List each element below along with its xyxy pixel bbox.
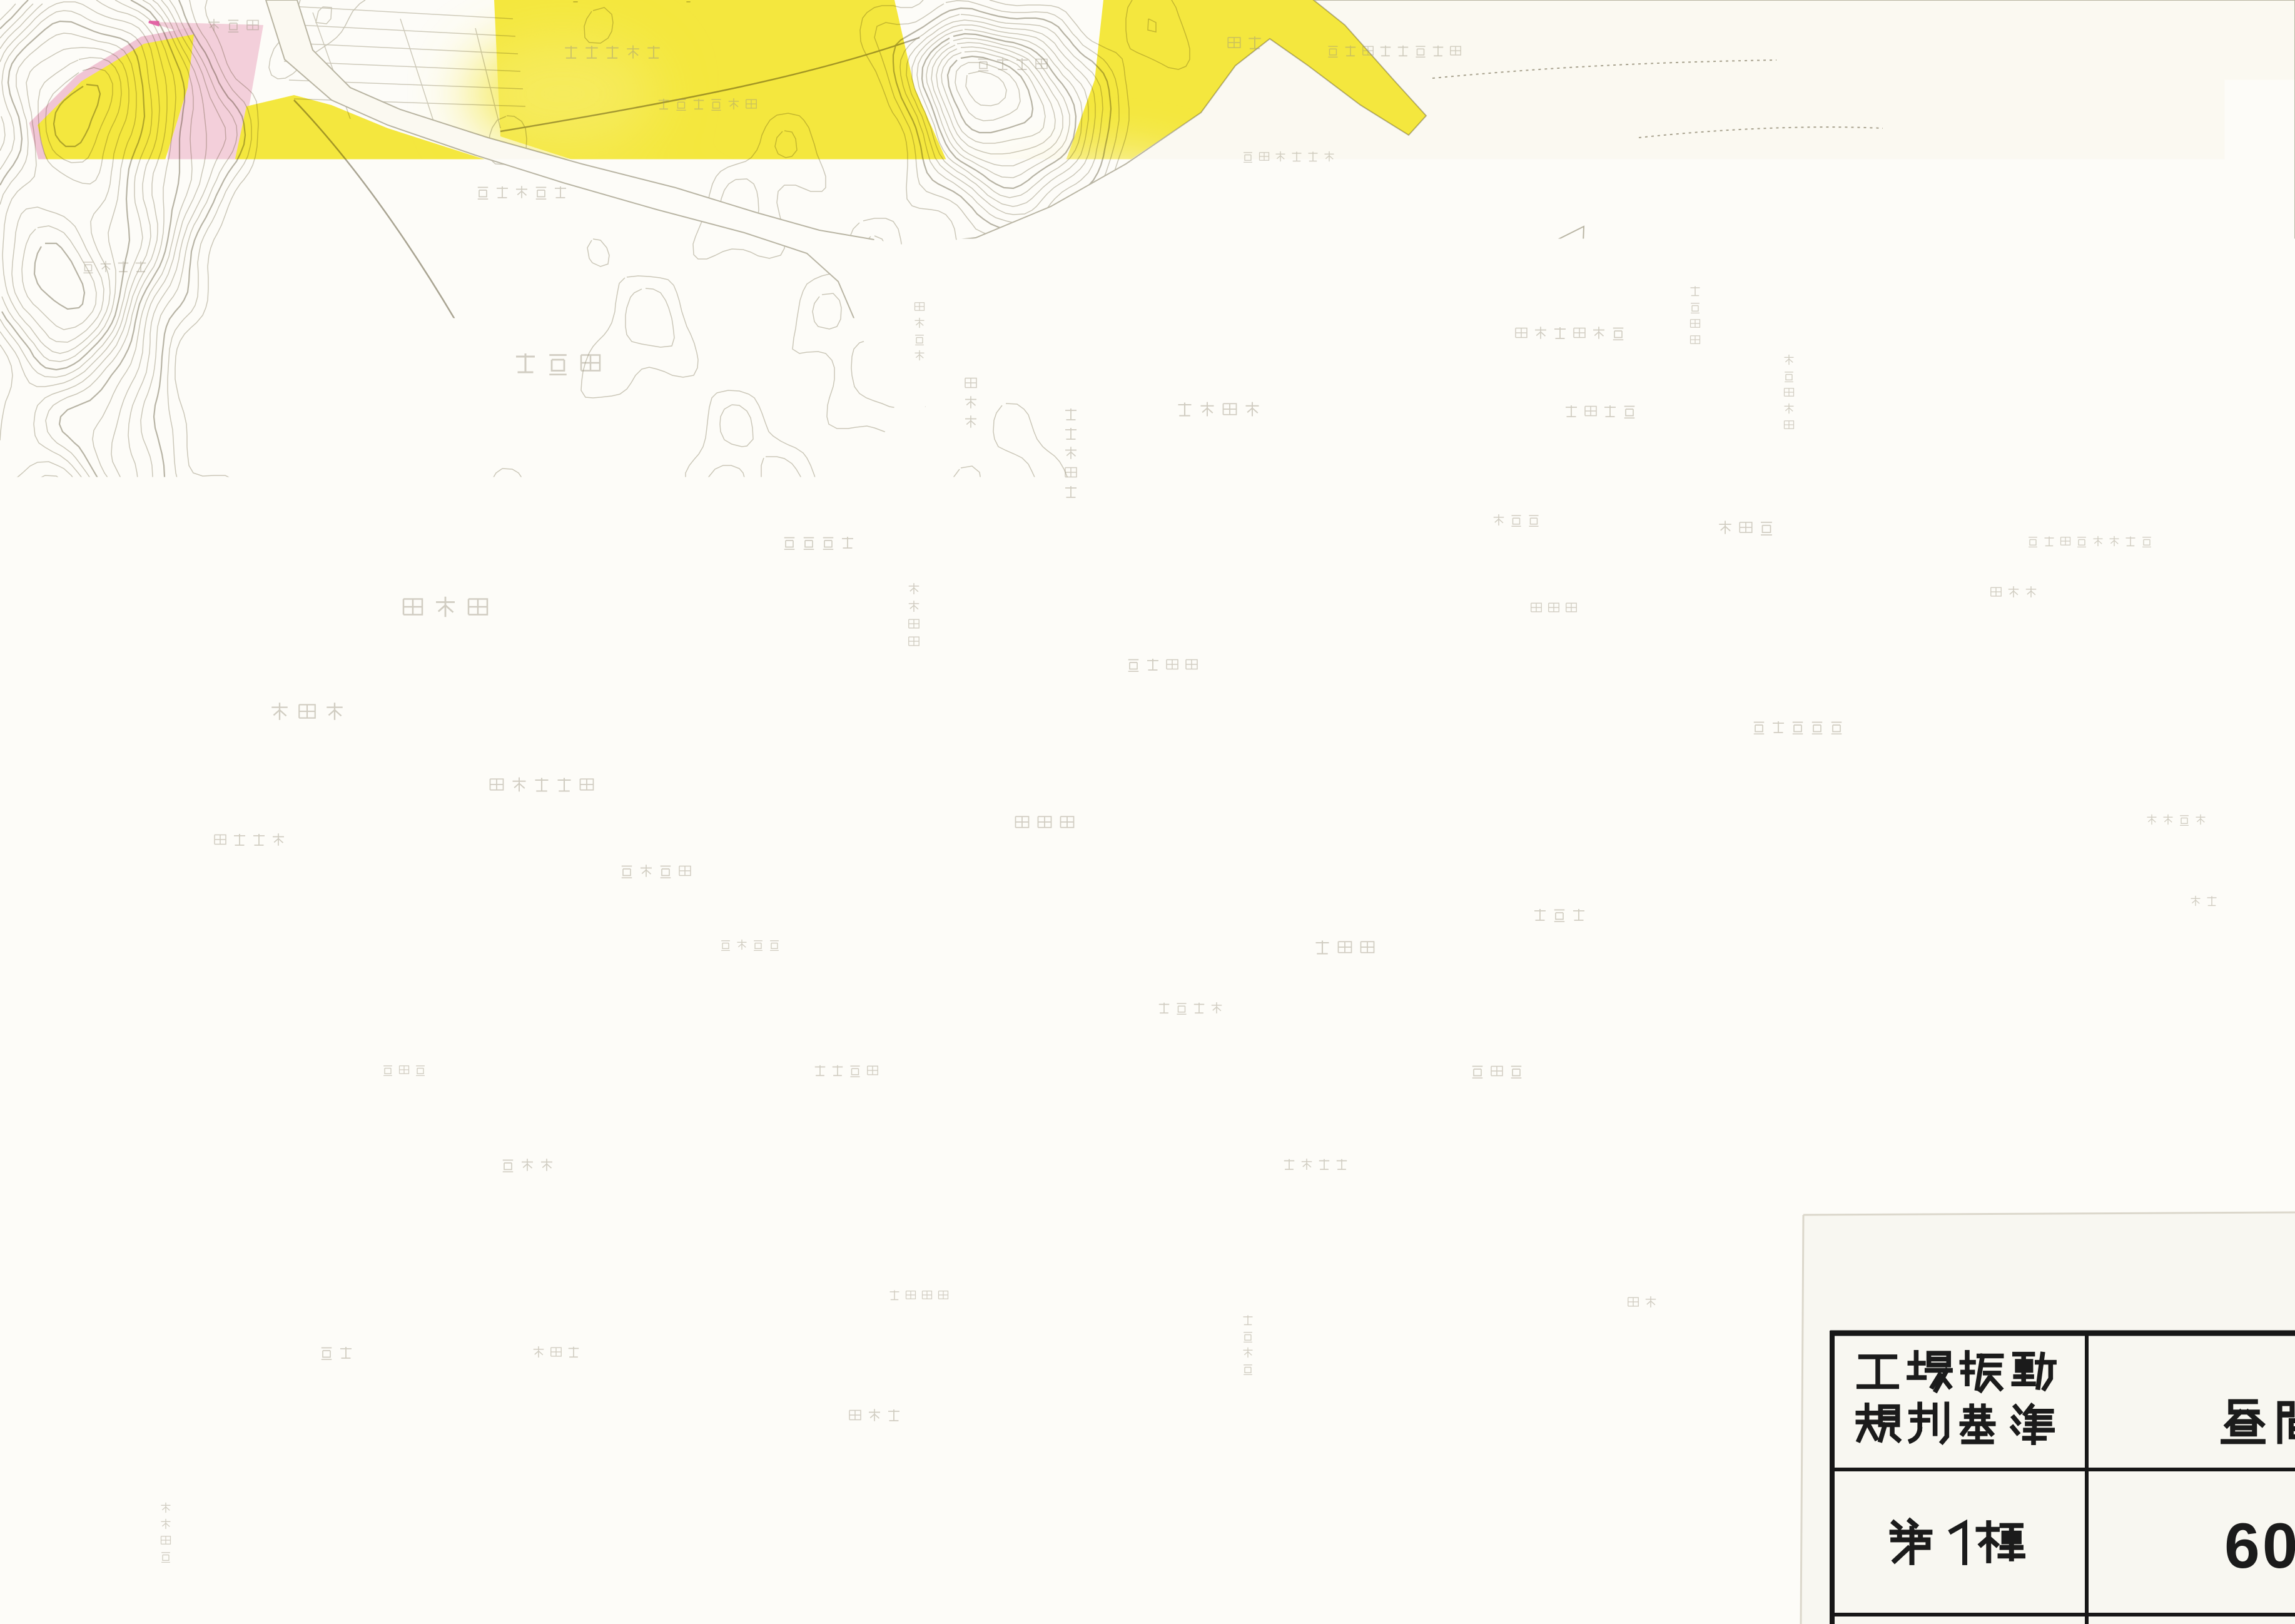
svg-text:60: 60 bbox=[2224, 1510, 2295, 1581]
